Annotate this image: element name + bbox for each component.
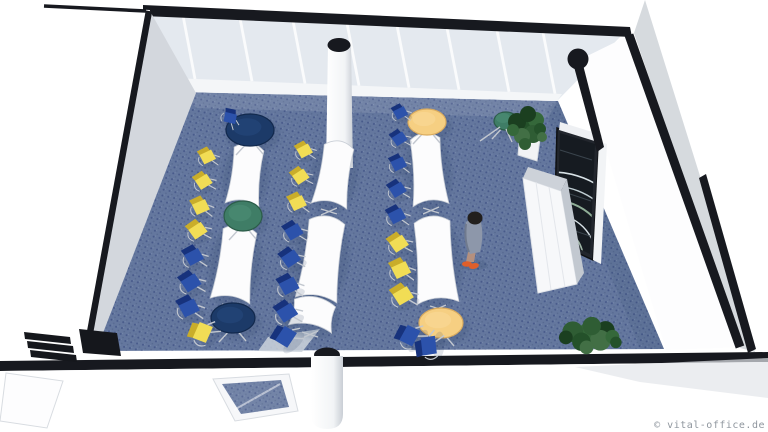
plant-foliage — [559, 331, 573, 345]
plant-foliage — [519, 138, 531, 150]
person-head — [468, 212, 483, 225]
round-table-highlight — [413, 112, 436, 126]
plant-foliage — [507, 124, 519, 136]
room-rendering: © vital-office.de — [0, 0, 768, 432]
scene-render — [0, 0, 768, 432]
plant-foliage — [610, 337, 622, 349]
columns-front — [311, 348, 343, 430]
column-body — [311, 356, 343, 429]
plant-foliage — [520, 106, 536, 122]
plant-foliage — [583, 317, 601, 335]
plant-foliage — [537, 132, 547, 142]
watermark: © vital-office.de — [654, 420, 765, 431]
round-table-highlight — [229, 205, 252, 222]
column-cut-top — [568, 49, 589, 70]
plant-foliage — [580, 341, 594, 355]
round-table-highlight — [425, 312, 451, 329]
back-window-wall — [143, 5, 632, 101]
column-front — [311, 348, 343, 430]
round-table-highlight — [217, 307, 243, 324]
column-cut-top — [328, 38, 351, 52]
